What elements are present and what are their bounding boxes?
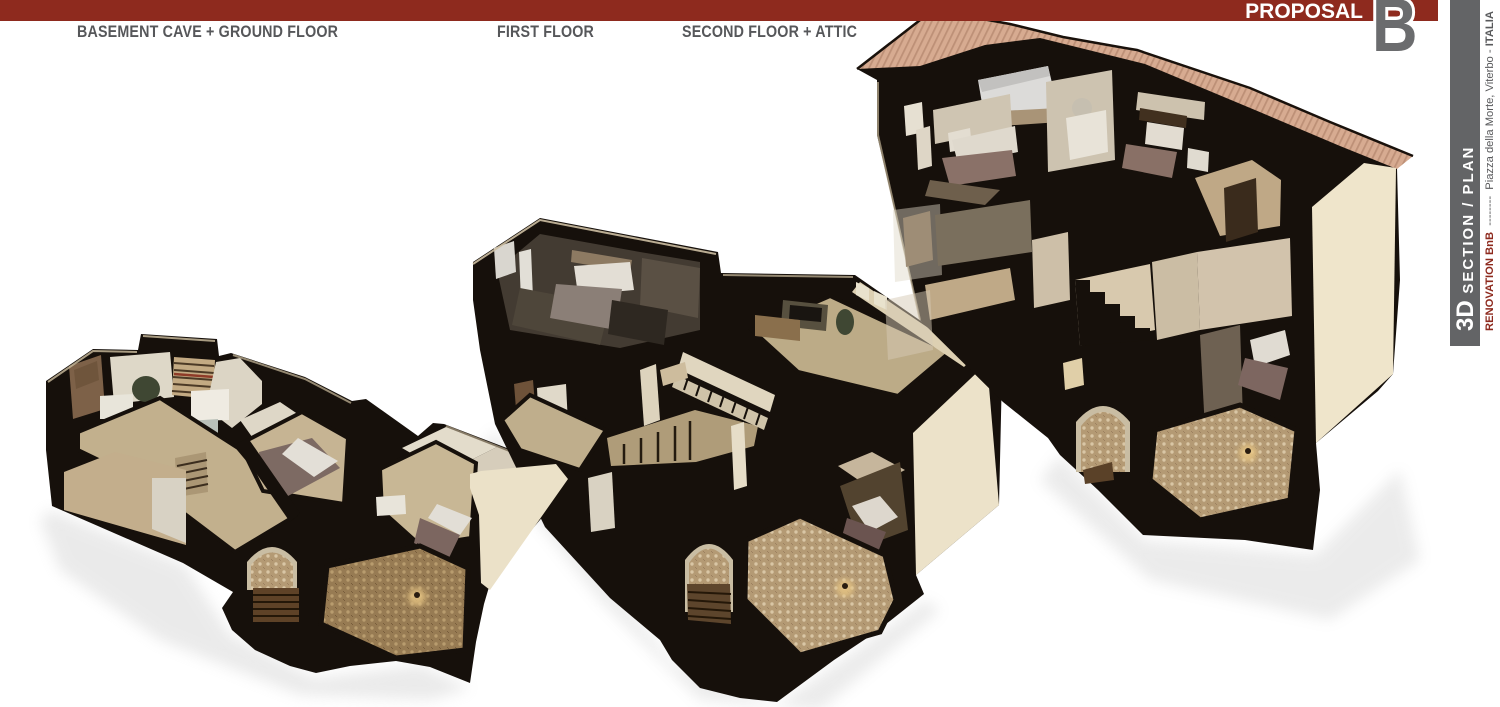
svg-text:B: B: [1372, 0, 1417, 67]
